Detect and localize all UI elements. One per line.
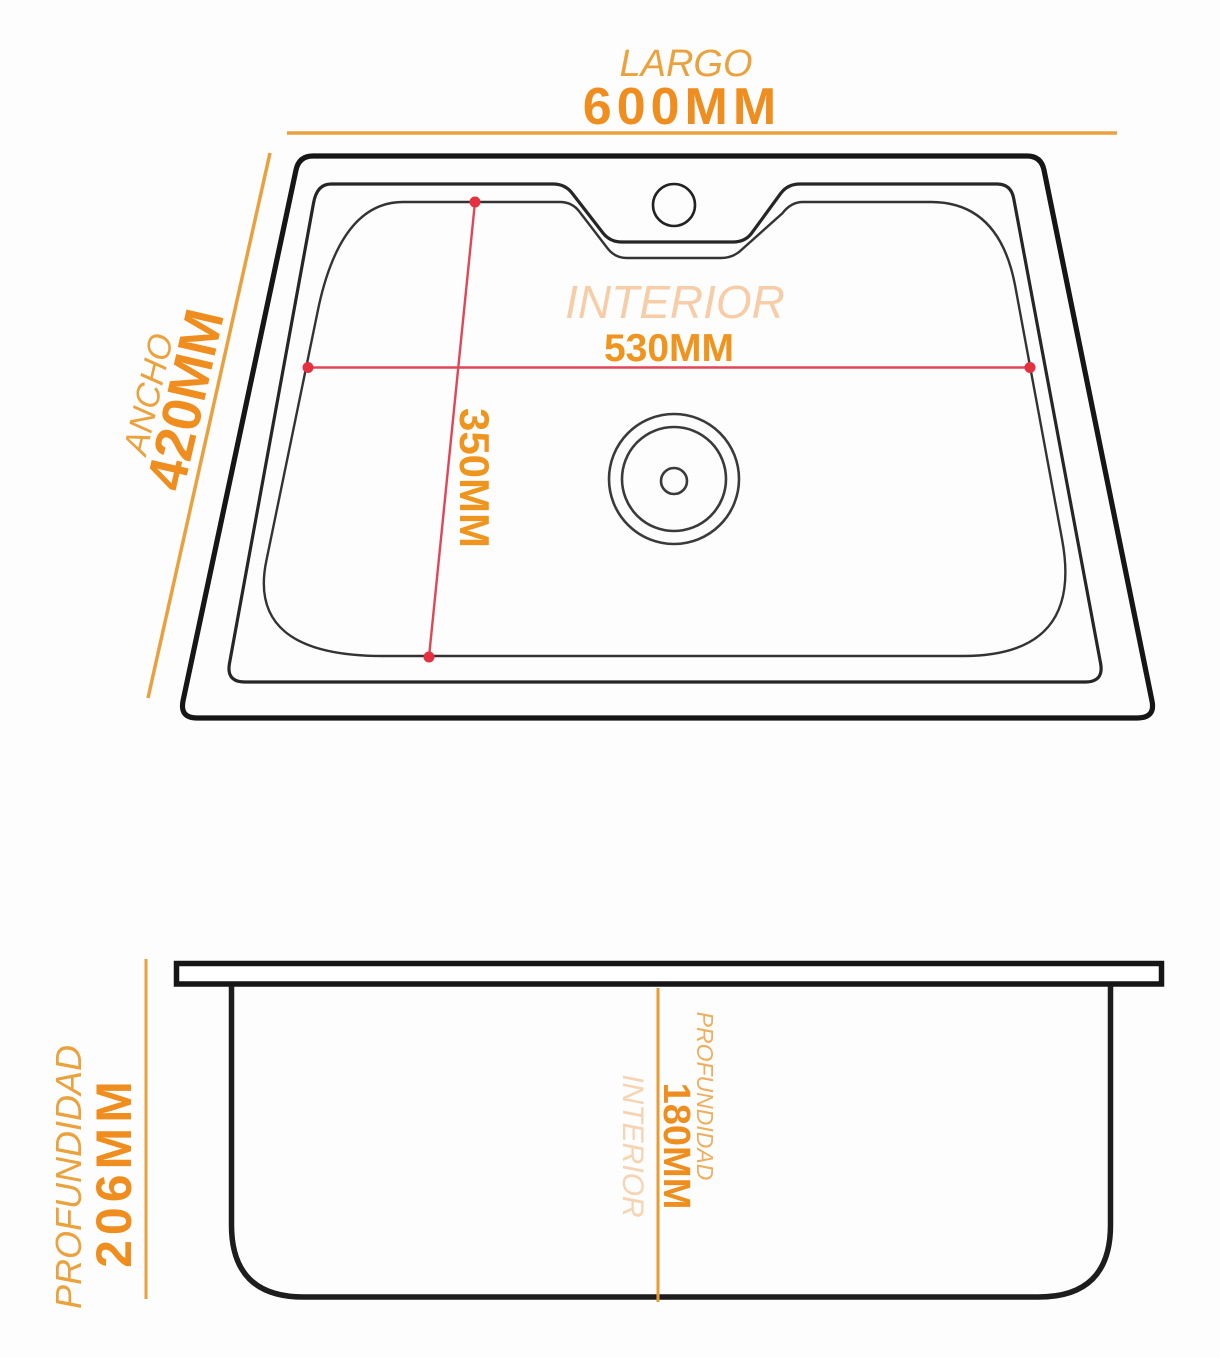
svg-text:180MM: 180MM	[655, 1083, 697, 1210]
svg-text:INTERIOR: INTERIOR	[565, 276, 785, 328]
svg-text:PROFUNDIDAD: PROFUNDIDAD	[48, 1045, 89, 1309]
svg-text:INTERIOR: INTERIOR	[616, 1074, 649, 1217]
svg-text:350MM: 350MM	[451, 408, 498, 548]
svg-text:206MM: 206MM	[86, 1076, 142, 1268]
svg-text:530MM: 530MM	[604, 327, 734, 370]
svg-text:600MM: 600MM	[583, 78, 781, 136]
